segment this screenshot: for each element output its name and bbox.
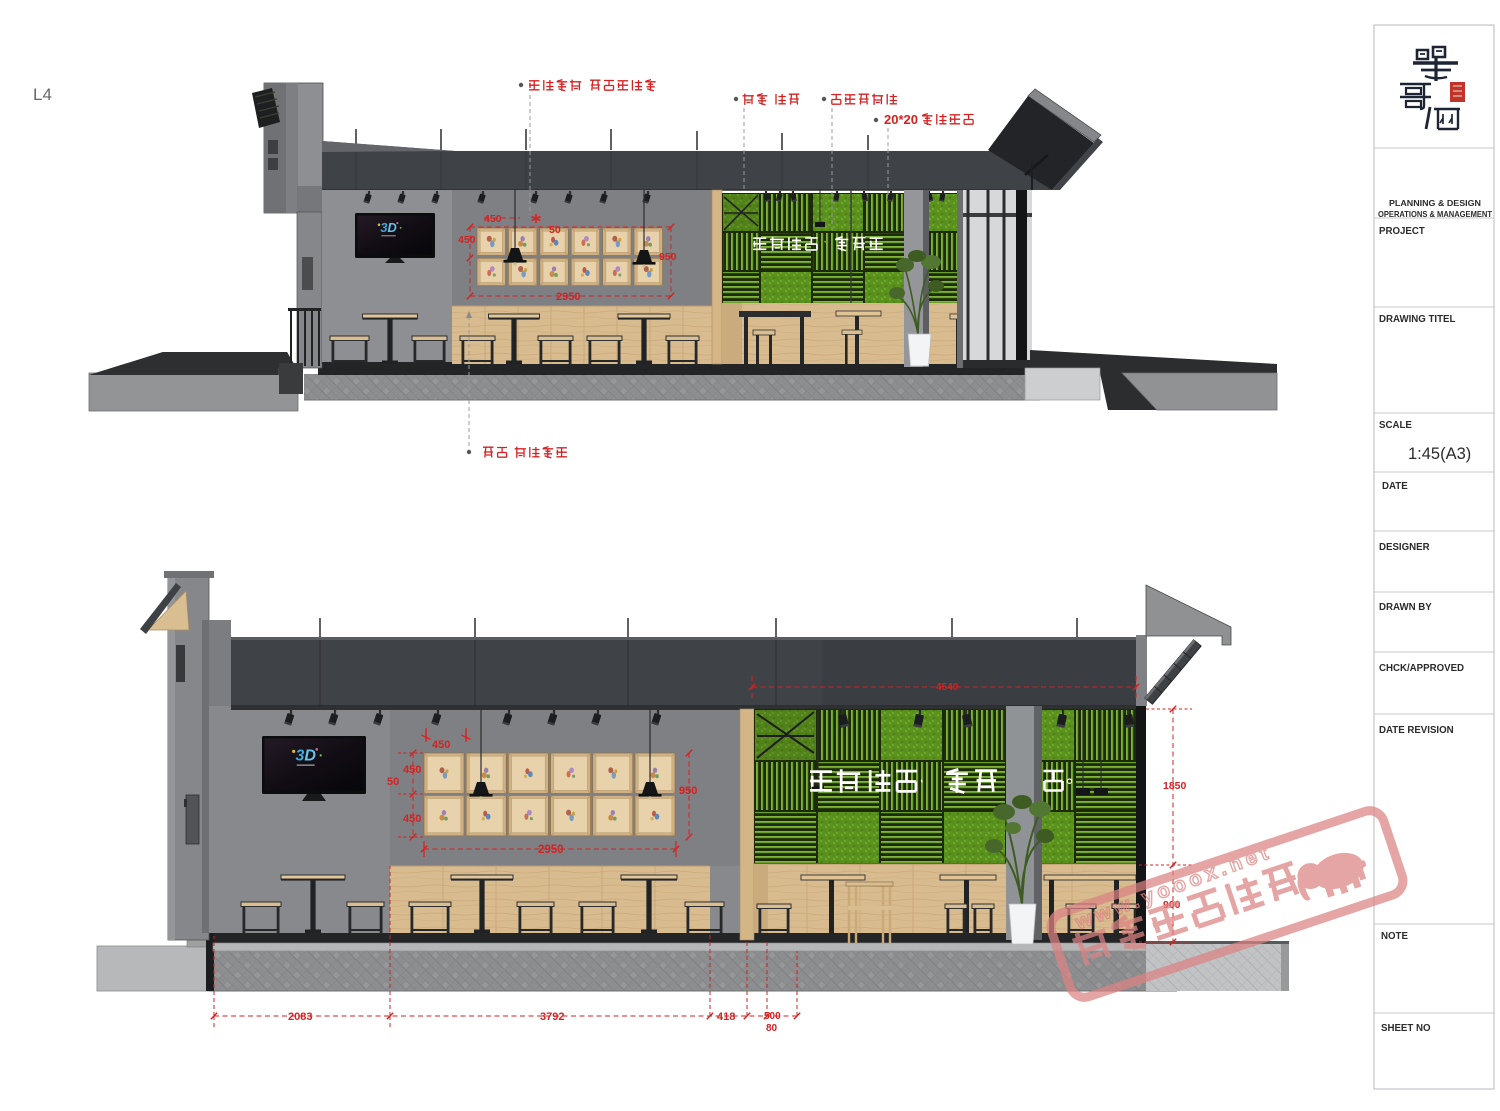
svg-text:1:45(A3): 1:45(A3) [1408,445,1471,463]
svg-text:OPERATIONS & MANAGEMENT: OPERATIONS & MANAGEMENT [1378,209,1493,219]
svg-text:50: 50 [549,224,561,236]
svg-text:3D: 3D [295,747,316,764]
svg-text:NOTE: NOTE [1381,931,1408,942]
svg-text:4540: 4540 [936,682,959,693]
svg-text:450: 450 [403,764,421,776]
svg-text:80: 80 [766,1023,778,1034]
svg-text:950: 950 [659,251,677,263]
svg-text:3D: 3D [380,220,396,235]
svg-text:DATE REVISION: DATE REVISION [1379,725,1454,736]
svg-text:2950: 2950 [556,291,580,303]
svg-text:L4: L4 [33,85,52,104]
svg-text:SCALE: SCALE [1379,420,1412,431]
svg-text:418: 418 [717,1011,735,1023]
svg-text:950: 950 [679,785,697,797]
svg-text:DRAWING TITEL: DRAWING TITEL [1379,314,1455,325]
svg-text:DATE: DATE [1382,481,1408,492]
svg-text:450: 450 [484,213,502,225]
svg-text:1850: 1850 [1163,780,1187,792]
svg-text:500: 500 [764,1011,781,1022]
svg-text:CHCK/APPROVED: CHCK/APPROVED [1379,663,1464,674]
svg-text:PROJECT: PROJECT [1379,226,1425,237]
svg-text:2083: 2083 [288,1011,312,1023]
svg-text:DRAWN BY: DRAWN BY [1379,602,1432,613]
svg-text:3792: 3792 [540,1011,564,1023]
svg-text:50: 50 [387,776,399,788]
svg-text:450: 450 [432,739,450,751]
svg-text:20*20: 20*20 [884,112,918,127]
svg-text:SHEET NO: SHEET NO [1381,1023,1431,1034]
svg-text:450: 450 [458,234,476,246]
svg-text:450: 450 [403,813,421,825]
svg-text:DESIGNER: DESIGNER [1379,542,1430,553]
svg-text:PLANNING & DESIGN: PLANNING & DESIGN [1389,198,1481,208]
svg-text:2950: 2950 [538,844,564,856]
